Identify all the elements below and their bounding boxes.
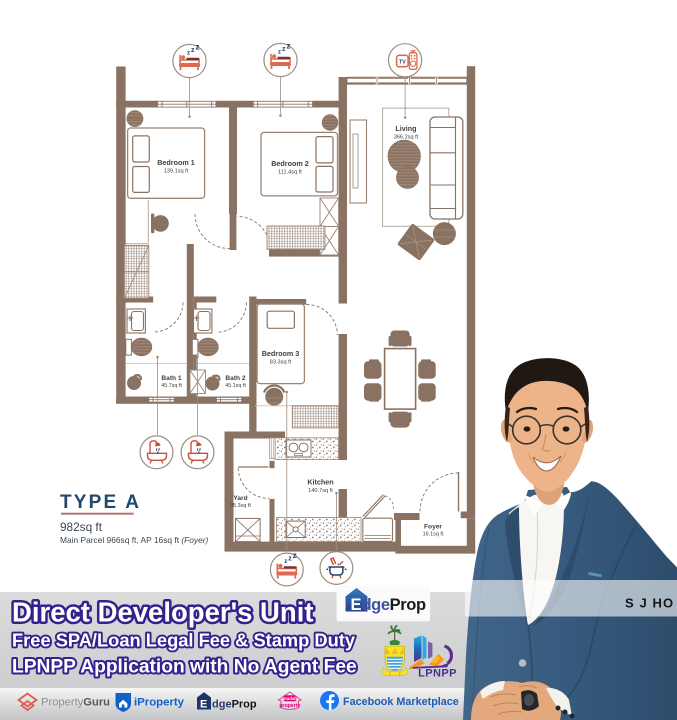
svg-text:139.1sq ft: 139.1sq ft [164,169,189,175]
svg-text:iProperty: iProperty [134,697,185,709]
svg-text:Yard: Yard [233,495,247,502]
svg-text:Living: Living [395,124,416,133]
svg-text:Foyer: Foyer [424,524,442,531]
svg-text:z: z [293,551,297,560]
svg-text:Bedroom 2: Bedroom 2 [271,159,309,168]
svg-text:111.4sq ft: 111.4sq ft [278,170,302,176]
svg-text:LPNPP: LPNPP [418,668,457,680]
svg-text:Bedroom 3: Bedroom 3 [262,349,300,358]
svg-text:45.7sq ft: 45.7sq ft [161,383,182,389]
svg-text:mudah: mudah [283,696,298,701]
svg-text:z: z [196,43,200,52]
svg-text:dgeProp: dgeProp [362,596,426,614]
svg-text:dgeProp: dgeProp [212,699,257,711]
svg-text:982sq ft: 982sq ft [60,520,103,534]
svg-text:83.3sq ft: 83.3sq ft [270,360,292,366]
svg-text:Free SPA/Loan Legal Fee & Stam: Free SPA/Loan Legal Fee & Stamp Duty [12,630,356,651]
svg-text:S J HO: S J HO [625,596,674,611]
svg-text:z: z [278,50,281,56]
svg-text:35.3sq ft: 35.3sq ft [230,503,251,509]
svg-text:z: z [284,559,287,565]
svg-text:45.1sq ft: 45.1sq ft [225,383,246,389]
svg-text:Facebook Marketplace: Facebook Marketplace [343,696,459,708]
svg-text:z: z [282,46,286,53]
svg-text:property: property [279,703,300,709]
svg-text:z: z [287,42,291,51]
svg-text:Main Parcel 966sq ft, AP 16sq: Main Parcel 966sq ft, AP 16sq ft (Foyer) [60,535,209,545]
svg-text:TYPE A: TYPE A [60,492,141,513]
svg-text:Bath 2: Bath 2 [225,375,245,382]
svg-text:TV: TV [399,60,406,66]
svg-text:Kitchen: Kitchen [307,478,333,487]
svg-text:z: z [187,51,190,57]
svg-text:z: z [288,556,292,563]
svg-text:PropertyGuru: PropertyGuru [41,697,110,709]
svg-text:z: z [191,47,195,54]
svg-text:16.1sq ft: 16.1sq ft [423,532,444,538]
svg-text:140.7sq ft: 140.7sq ft [308,488,333,494]
svg-text:E: E [351,596,362,614]
svg-text:Direct Developer's Unit: Direct Developer's Unit [12,597,314,628]
svg-text:Bath 1: Bath 1 [161,375,181,382]
svg-text:366.2sq ft: 366.2sq ft [394,135,419,141]
svg-text:LPNPP Application with No Agen: LPNPP Application with No Agent Fee [12,657,357,678]
svg-text:E: E [200,699,207,711]
svg-text:Bedroom 1: Bedroom 1 [157,158,195,167]
